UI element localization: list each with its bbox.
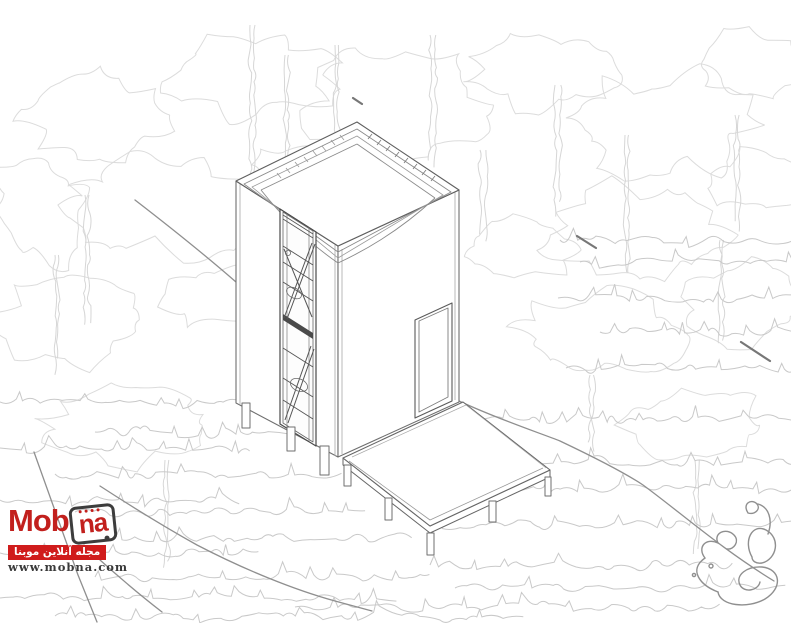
sketch-stroke bbox=[588, 375, 595, 452]
sketch-stroke bbox=[600, 319, 791, 336]
website-url: www.mobna.com bbox=[8, 560, 128, 574]
tablet-home-button-icon bbox=[104, 535, 109, 540]
sketch-stroke bbox=[560, 228, 791, 247]
branch-dash bbox=[353, 98, 362, 104]
sketch-stroke bbox=[614, 388, 759, 460]
sketch-stroke bbox=[428, 35, 437, 167]
sketch-stroke bbox=[464, 214, 581, 278]
sketch-stroke bbox=[681, 257, 791, 350]
cabin-drawing bbox=[236, 122, 551, 555]
mobna-watermark: Mob na مجله آنلاین موبنا www.mobna.com bbox=[8, 504, 128, 574]
architectural-illustration-page: { "scene": { "drawing": "axonometric-cab… bbox=[0, 0, 791, 623]
tablet-camera-dots-icon bbox=[78, 510, 81, 513]
sketch-stroke bbox=[248, 25, 256, 187]
sketch-stroke bbox=[718, 240, 725, 343]
sketch-stroke bbox=[708, 147, 791, 208]
sketch-stroke bbox=[558, 284, 791, 302]
glazed-stair-slot bbox=[280, 209, 316, 446]
sketch-stroke bbox=[553, 85, 562, 217]
sketch-stroke bbox=[295, 593, 720, 613]
sketch-stroke bbox=[537, 176, 738, 282]
sketch-stroke bbox=[83, 195, 91, 325]
persian-calligraphy-signature bbox=[692, 502, 777, 605]
sketch-stroke bbox=[623, 135, 630, 273]
sketch-stroke bbox=[163, 460, 170, 568]
mobna-logo: Mob na bbox=[8, 504, 128, 542]
sketch-stroke bbox=[0, 158, 90, 271]
sketch-stroke bbox=[693, 460, 700, 554]
sketch-stroke bbox=[430, 553, 732, 570]
sketch-stroke bbox=[425, 514, 791, 530]
magazine-banner: مجله آنلاین موبنا bbox=[8, 545, 106, 560]
sketch-stroke bbox=[566, 355, 791, 373]
sketch-stroke bbox=[58, 151, 248, 264]
sketch-stroke bbox=[702, 27, 791, 99]
sketch-stroke bbox=[566, 64, 765, 181]
sketch-stroke bbox=[478, 150, 488, 241]
sketch-stroke bbox=[0, 586, 396, 604]
sketch-stroke bbox=[95, 562, 429, 582]
sketch-stroke bbox=[463, 34, 622, 115]
sketch-stroke bbox=[0, 275, 139, 373]
sketch-stroke bbox=[35, 383, 203, 472]
entry-door bbox=[415, 303, 452, 418]
sketch-stroke bbox=[13, 66, 175, 163]
sketch-stroke bbox=[115, 527, 412, 542]
sketch-stroke bbox=[0, 392, 243, 409]
sketch-stroke bbox=[455, 575, 785, 592]
slope-line-upper-left bbox=[135, 200, 236, 282]
tablet-icon: na bbox=[68, 503, 118, 546]
brand-text-prefix: Mob bbox=[8, 504, 69, 538]
sketch-stroke bbox=[55, 464, 342, 480]
slope-line-lower-left bbox=[100, 486, 372, 611]
